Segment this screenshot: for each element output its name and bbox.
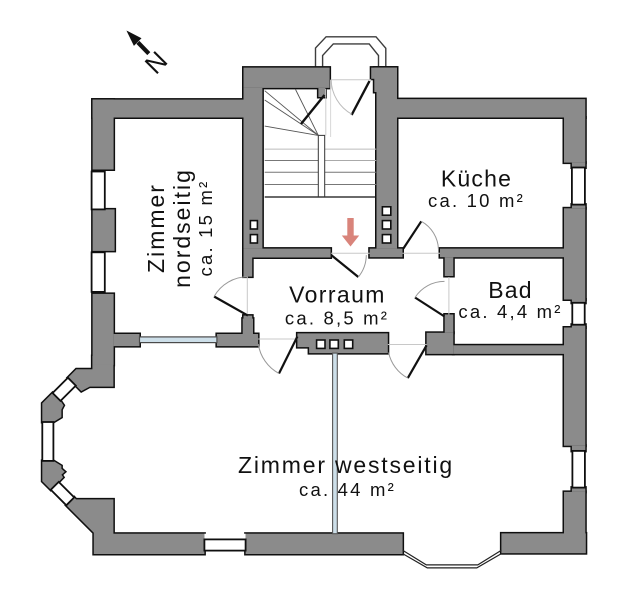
svg-text:ca. 8,5 m²: ca. 8,5 m² [285,307,389,328]
svg-text:Zimmer: Zimmer [143,183,169,273]
svg-text:Küche: Küche [441,165,512,191]
svg-text:ca. 10 m²: ca. 10 m² [428,190,525,211]
svg-text:ca. 15 m²: ca. 15 m² [195,180,216,277]
svg-text:ca. 44 m²: ca. 44 m² [299,479,396,500]
svg-text:Vorraum: Vorraum [289,281,386,307]
svg-text:nordseitig: nordseitig [169,168,195,288]
svg-text:Bad: Bad [488,277,533,303]
svg-text:Zimmer westseitig: Zimmer westseitig [238,452,454,478]
svg-text:ca. 4,4 m²: ca. 4,4 m² [458,301,562,322]
